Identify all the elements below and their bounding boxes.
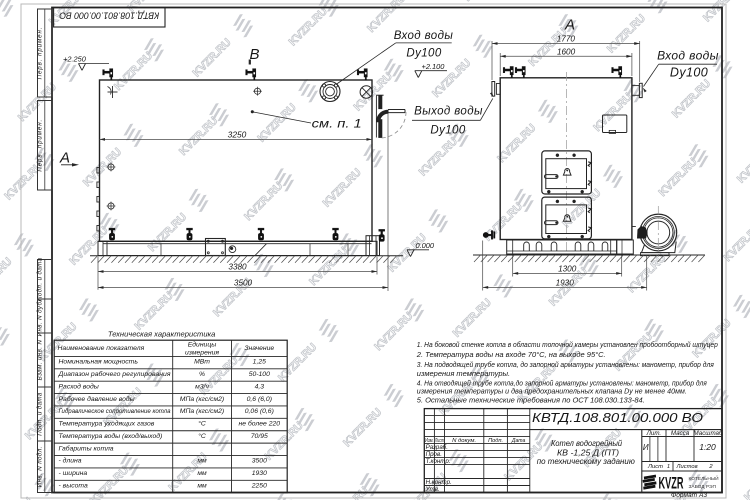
svg-text:измерения температуры и два пр: измерения температуры и два предохраните…	[417, 387, 687, 396]
svg-text:0,6 (6,0): 0,6 (6,0)	[247, 396, 272, 403]
svg-text:Лист: Лист	[647, 464, 663, 470]
svg-text:2250: 2250	[251, 483, 267, 490]
svg-text:Т.контр.: Т.контр.	[426, 458, 451, 465]
svg-text:°С: °С	[198, 432, 206, 440]
svg-text:измерения температуры.: измерения температуры.	[417, 369, 510, 378]
svg-text:Лист: Лист	[434, 438, 444, 444]
svg-text:1:20: 1:20	[699, 442, 716, 452]
svg-text:70/95: 70/95	[251, 433, 268, 440]
svg-text:Dy100: Dy100	[670, 66, 708, 80]
svg-text:мм: мм	[197, 470, 207, 477]
svg-text:- ширина: - ширина	[59, 470, 88, 477]
svg-text:Подп. и дата: Подп. и дата	[36, 257, 43, 301]
svg-text:Рабочее давление воды: Рабочее давление воды	[59, 395, 135, 403]
svg-text:Пров.: Пров.	[426, 451, 442, 458]
svg-text:°С: °С	[198, 420, 206, 428]
svg-text:1. На боковой стенке котла в: 1. На боковой стенке котла в области топ…	[417, 340, 718, 349]
svg-text:Dy100: Dy100	[430, 125, 465, 137]
svg-text:0,06 (0,6): 0,06 (0,6)	[245, 408, 274, 415]
svg-text:Подп. и дата: Подп. и дата	[36, 392, 43, 436]
svg-text:Листов: Листов	[676, 464, 698, 470]
svg-text:Гидравлическое сопротивление к: Гидравлическое сопротивление котла	[59, 407, 171, 415]
svg-text:Диапазон рабочего регулировани: Диапазон рабочего регулирования	[57, 370, 170, 378]
svg-text:КВТД.108.801.00.000 ВО: КВТД.108.801.00.000 ВО	[59, 10, 159, 20]
svg-text:МПа (кгс/см2): МПа (кгс/см2)	[180, 408, 224, 415]
svg-text:мм: мм	[197, 458, 207, 465]
svg-text:2. Температура воды на входе: 2. Температура воды на входе 70°С, на вы…	[416, 350, 606, 359]
svg-text:- высота: - высота	[59, 483, 88, 490]
svg-text:Dy100: Dy100	[406, 48, 441, 60]
svg-text:КВТД.108.801.00.000 ВО: КВТД.108.801.00.000 ВО	[532, 410, 703, 425]
svg-text:5. Остальные технические треб: 5. Остальные технические требования по О…	[417, 396, 645, 405]
svg-text:4,3: 4,3	[255, 383, 265, 390]
svg-text:Вход воды: Вход воды	[394, 30, 454, 42]
svg-text:KVZR: KVZR	[659, 474, 684, 492]
svg-text:А: А	[59, 149, 70, 166]
svg-text:3380: 3380	[228, 263, 247, 272]
svg-text:Утв.: Утв.	[425, 486, 440, 493]
svg-text:Единицы: Единицы	[188, 340, 216, 348]
svg-text:Инв. N подл.: Инв. N подл.	[36, 446, 43, 487]
svg-text:Перв. примен.: Перв. примен.	[36, 119, 43, 172]
svg-text:Габариты котла: Габариты котла	[59, 444, 114, 452]
svg-text:Значение: Значение	[244, 345, 274, 352]
svg-text:1930: 1930	[252, 470, 267, 477]
svg-text:Лит.: Лит.	[646, 430, 662, 437]
svg-text:Температура уходящих газов: Температура уходящих газов	[59, 420, 155, 428]
svg-text:МВт: МВт	[194, 359, 210, 366]
svg-text:Масса: Масса	[671, 430, 690, 437]
svg-text:мм: мм	[197, 483, 207, 490]
svg-text:Н.контр.: Н.контр.	[426, 479, 452, 486]
svg-text:Взам. инв. N: Взам. инв. N	[36, 339, 43, 380]
svg-text:Изм.: Изм.	[425, 438, 434, 444]
svg-text:+2.100: +2.100	[422, 62, 446, 71]
svg-text:3500: 3500	[234, 279, 253, 288]
svg-text:Разраб.: Разраб.	[426, 444, 448, 451]
svg-text:не более 220: не более 220	[239, 420, 281, 428]
svg-text:Формат А3: Формат А3	[671, 492, 707, 499]
svg-text:Перв. примен.: Перв. примен.	[36, 27, 43, 80]
svg-text:Температура воды (вход/выход): Температура воды (вход/выход)	[59, 432, 163, 440]
svg-text:0.000: 0.000	[416, 241, 435, 250]
svg-text:1770: 1770	[557, 35, 576, 44]
svg-text:Дата: Дата	[511, 438, 525, 444]
svg-text:ЗАВОД РЭП: ЗАВОД РЭП	[689, 484, 717, 490]
svg-text:+2.250: +2.250	[63, 55, 87, 64]
svg-text:N докум.: N докум.	[452, 438, 476, 444]
svg-text:Инв. N дубл.: Инв. N дубл.	[36, 296, 43, 337]
svg-text:Подп.: Подп.	[488, 438, 503, 444]
svg-text:Выход воды: Выход воды	[414, 105, 483, 117]
svg-text:Техническая характеристика: Техническая характеристика	[108, 330, 216, 339]
svg-text:см. п. 1: см. п. 1	[312, 117, 362, 131]
svg-text:Наименование показателя: Наименование показателя	[58, 345, 145, 352]
svg-text:%: %	[199, 371, 205, 378]
svg-text:измерения: измерения	[185, 349, 219, 356]
svg-text:- длина: - длина	[59, 457, 82, 465]
svg-text:МПа (кгс/см2): МПа (кгс/см2)	[180, 396, 224, 403]
svg-text:Масштаб: Масштаб	[694, 430, 723, 437]
svg-text:1,25: 1,25	[253, 359, 266, 366]
svg-text:И: И	[643, 443, 649, 452]
svg-text:Номинальная мощность: Номинальная мощность	[59, 359, 139, 366]
svg-text:1: 1	[667, 464, 670, 470]
svg-text:Вход воды: Вход воды	[657, 49, 719, 63]
svg-text:1600: 1600	[557, 47, 576, 56]
svg-text:по техническому заданию: по техническому заданию	[537, 456, 635, 466]
svg-text:м3/ч: м3/ч	[195, 383, 209, 390]
svg-text:А: А	[564, 17, 575, 34]
svg-text:Расход воды: Расход воды	[59, 382, 99, 390]
svg-text:3. На подводящей трубе котла,: 3. На подводящей трубе котла, до запорно…	[417, 360, 714, 369]
svg-text:3250: 3250	[228, 130, 247, 140]
svg-text:3500: 3500	[252, 458, 267, 465]
svg-text:50-100: 50-100	[249, 371, 270, 378]
svg-text:1930: 1930	[556, 278, 575, 287]
svg-text:1300: 1300	[558, 264, 577, 273]
svg-text:В: В	[249, 46, 259, 63]
